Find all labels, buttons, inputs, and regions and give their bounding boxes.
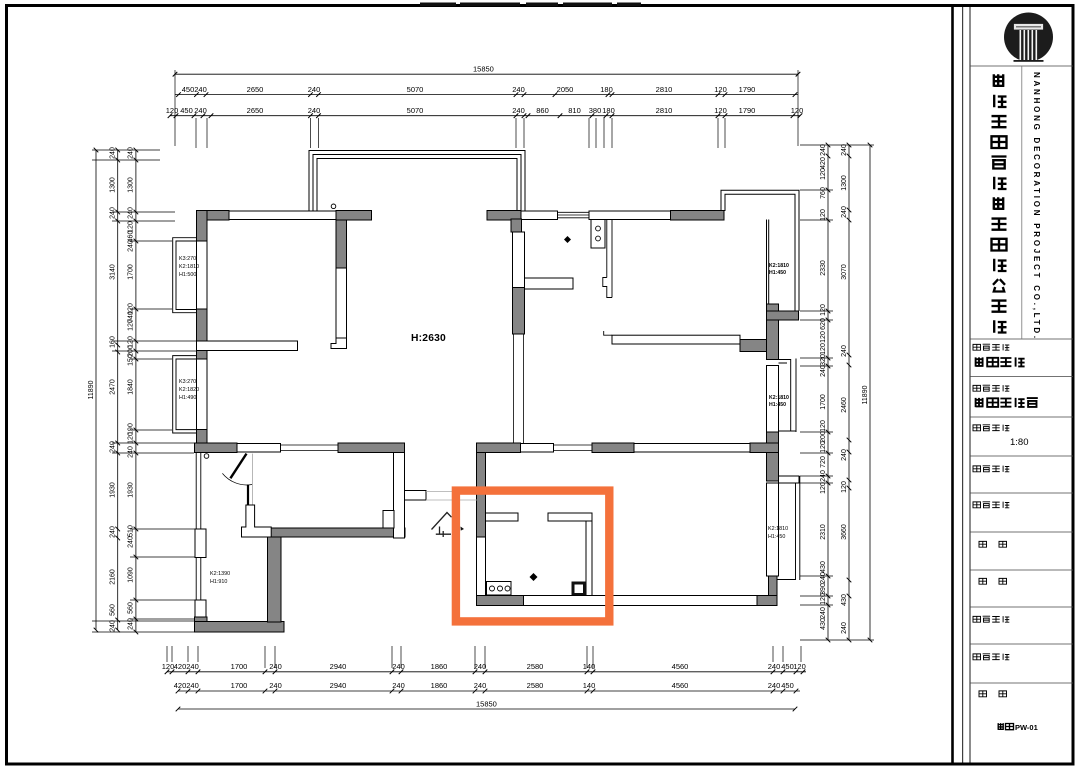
svg-text:K2:1810: K2:1810: [769, 395, 789, 401]
svg-text:120: 120: [128, 319, 135, 331]
svg-text:2940: 2940: [330, 681, 347, 690]
svg-text:2460: 2460: [841, 397, 848, 413]
svg-text:1700: 1700: [820, 394, 827, 410]
svg-text:240: 240: [474, 681, 487, 690]
svg-text:420: 420: [820, 157, 827, 169]
svg-text:240: 240: [820, 365, 827, 377]
svg-text:3660: 3660: [841, 524, 848, 540]
svg-text:15850: 15850: [476, 700, 497, 709]
svg-text:K3:270: K3:270: [179, 256, 196, 262]
svg-text:H1:450: H1:450: [769, 270, 786, 276]
svg-text:240: 240: [194, 85, 207, 94]
svg-text:450: 450: [781, 662, 794, 671]
svg-text:240: 240: [128, 446, 135, 458]
svg-text:4560: 4560: [672, 681, 689, 690]
svg-text:240: 240: [110, 207, 117, 219]
svg-text:150: 150: [128, 354, 135, 366]
svg-text:1860: 1860: [431, 681, 448, 690]
svg-text:120: 120: [820, 482, 827, 494]
svg-text:1:80: 1:80: [1010, 437, 1029, 448]
svg-text:K2:1390: K2:1390: [210, 571, 230, 577]
svg-text:240: 240: [820, 607, 827, 619]
svg-text:120: 120: [714, 85, 727, 94]
svg-text:240: 240: [128, 240, 135, 252]
svg-text:1840: 1840: [128, 379, 135, 395]
svg-text:420: 420: [174, 662, 187, 671]
svg-text:H1:450: H1:450: [769, 402, 786, 408]
svg-text:240: 240: [186, 681, 199, 690]
svg-text:1090: 1090: [128, 567, 135, 583]
svg-text:450: 450: [182, 85, 195, 94]
svg-text:2650: 2650: [247, 85, 264, 94]
svg-text:PW-01: PW-01: [1015, 723, 1038, 732]
svg-text:2940: 2940: [330, 662, 347, 671]
svg-text:2160: 2160: [110, 569, 117, 585]
svg-text:180: 180: [600, 85, 613, 94]
svg-text:120: 120: [128, 432, 135, 444]
svg-text:240: 240: [841, 449, 848, 461]
svg-text:H1:450: H1:450: [768, 534, 785, 540]
svg-text:120: 120: [820, 343, 827, 355]
svg-text:11890: 11890: [862, 385, 869, 404]
svg-text:5070: 5070: [407, 106, 424, 115]
svg-text:5070: 5070: [407, 85, 424, 94]
svg-text:560: 560: [110, 604, 117, 616]
svg-text:K2:1820: K2:1820: [179, 387, 199, 393]
svg-text:K2:1810: K2:1810: [768, 526, 788, 532]
svg-text:15850: 15850: [473, 65, 494, 74]
svg-text:1790: 1790: [739, 85, 756, 94]
svg-text:1700: 1700: [128, 264, 135, 280]
svg-text:240: 240: [269, 681, 282, 690]
svg-text:120: 120: [820, 304, 827, 316]
svg-text:K2:1810: K2:1810: [179, 264, 199, 270]
svg-text:240: 240: [841, 345, 848, 357]
svg-text:720: 720: [820, 456, 827, 468]
svg-text:240: 240: [110, 147, 117, 159]
svg-text:240: 240: [269, 662, 282, 671]
svg-text:160: 160: [110, 336, 117, 348]
svg-text:3140: 3140: [110, 264, 117, 280]
svg-text:380: 380: [589, 106, 602, 115]
svg-text:2810: 2810: [656, 106, 673, 115]
svg-text:120: 120: [820, 209, 827, 221]
svg-text:1930: 1930: [110, 482, 117, 498]
svg-text:240: 240: [768, 662, 781, 671]
svg-text:240: 240: [308, 85, 321, 94]
svg-text:560: 560: [128, 602, 135, 614]
svg-text:1790: 1790: [739, 106, 756, 115]
svg-text:1700: 1700: [231, 681, 248, 690]
svg-text:240: 240: [308, 106, 321, 115]
svg-text:120: 120: [791, 106, 804, 115]
svg-text:2050: 2050: [557, 85, 574, 94]
svg-text:860: 860: [536, 106, 549, 115]
svg-text:4560: 4560: [672, 662, 689, 671]
svg-text:120: 120: [820, 331, 827, 343]
svg-text:1930: 1930: [128, 482, 135, 498]
svg-text:430: 430: [841, 594, 848, 606]
svg-text:120: 120: [162, 662, 175, 671]
svg-text:240: 240: [128, 147, 135, 159]
svg-text:1300: 1300: [110, 177, 117, 193]
svg-text:240: 240: [512, 106, 525, 115]
svg-text:1700: 1700: [231, 662, 248, 671]
svg-text:240: 240: [128, 207, 135, 219]
svg-text:2310: 2310: [820, 524, 827, 540]
svg-text:240: 240: [512, 85, 525, 94]
svg-text:120: 120: [714, 106, 727, 115]
svg-text:240: 240: [186, 662, 199, 671]
svg-text:H1:500: H1:500: [179, 272, 196, 278]
svg-text:120: 120: [841, 481, 848, 493]
svg-text:180: 180: [602, 106, 615, 115]
svg-text:240: 240: [841, 622, 848, 634]
svg-text:K2:1810: K2:1810: [769, 263, 789, 269]
svg-text:120: 120: [793, 662, 806, 671]
svg-text:NANHONG DECORATION PROJECT CO.: NANHONG DECORATION PROJECT CO.,LTD.: [1032, 72, 1041, 341]
svg-text:240: 240: [128, 536, 135, 548]
svg-text:2330: 2330: [820, 260, 827, 276]
svg-text:1300: 1300: [128, 177, 135, 193]
svg-text:240: 240: [474, 662, 487, 671]
svg-text:240: 240: [768, 681, 781, 690]
svg-text:810: 810: [568, 106, 581, 115]
svg-text:430: 430: [820, 618, 827, 630]
svg-text:450: 450: [180, 106, 193, 115]
svg-text:3070: 3070: [841, 264, 848, 280]
svg-text:450: 450: [781, 681, 794, 690]
svg-text:430: 430: [820, 561, 827, 573]
svg-text:K3:270: K3:270: [179, 379, 196, 385]
svg-text:2650: 2650: [247, 106, 264, 115]
svg-text:2580: 2580: [527, 681, 544, 690]
svg-text:11890: 11890: [88, 380, 95, 399]
svg-text:2580: 2580: [527, 662, 544, 671]
svg-text:H:2630: H:2630: [411, 333, 446, 344]
svg-text:240: 240: [128, 618, 135, 630]
svg-text:120: 120: [820, 168, 827, 180]
svg-text:200: 200: [820, 431, 827, 443]
svg-text:2470: 2470: [110, 379, 117, 395]
svg-text:390: 390: [820, 583, 827, 595]
svg-text:1860: 1860: [431, 662, 448, 671]
svg-text:H1:910: H1:910: [210, 579, 227, 585]
svg-text:240: 240: [110, 620, 117, 632]
svg-text:2810: 2810: [656, 85, 673, 94]
svg-text:1300: 1300: [841, 175, 848, 191]
svg-text:760: 760: [820, 187, 827, 199]
svg-text:H1:490: H1:490: [179, 395, 196, 401]
